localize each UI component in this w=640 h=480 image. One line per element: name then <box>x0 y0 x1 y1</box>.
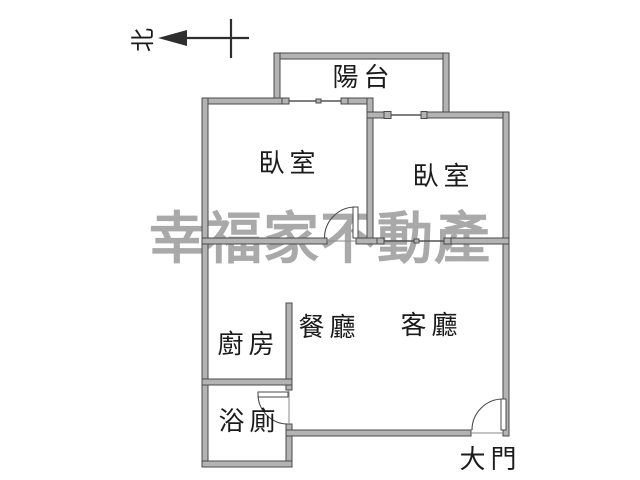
room-label-living: 客廳 <box>395 313 462 339</box>
bedroom-right-top-wall-b <box>426 112 509 118</box>
window-tick <box>316 99 321 103</box>
main-door-label: 大門 <box>454 447 521 473</box>
room-label-dining: 餐廳 <box>293 315 360 341</box>
kitchen-bathroom-wall <box>202 379 292 385</box>
middle-wall-c <box>450 238 509 244</box>
bathroom-door-leaf <box>258 392 288 397</box>
room-label-balcony: 陽台 <box>327 65 394 91</box>
north-compass: 北 <box>130 19 249 58</box>
balcony-left-wall <box>274 53 280 100</box>
room-label-bedroom-right: 臥室 <box>407 164 474 190</box>
balcony-top-wall <box>274 53 449 59</box>
window-cap <box>444 238 451 244</box>
main-door-leaf <box>501 399 506 430</box>
left-exterior-wall <box>202 98 208 467</box>
middle-wall-a <box>202 238 327 244</box>
window-tick <box>414 239 419 243</box>
window-cap <box>341 98 348 104</box>
window-cap <box>282 98 289 104</box>
window-cap <box>384 112 391 119</box>
room-label-bedroom-left: 臥室 <box>253 151 320 177</box>
north-label: 北 <box>130 28 157 52</box>
walls <box>202 53 509 467</box>
floor-plan-drawing: 北 <box>0 0 640 480</box>
right-exterior-wall <box>503 112 509 436</box>
window-cap <box>377 238 384 244</box>
window-cap <box>421 112 427 119</box>
north-arrow-icon <box>158 30 187 46</box>
kitchen-partition-wall <box>286 303 292 390</box>
bathroom-bottom-wall <box>202 461 292 467</box>
room-label-bathroom: 浴廁 <box>213 409 280 435</box>
main-door-arc <box>472 399 503 430</box>
room-label-kitchen: 廚房 <box>212 332 279 358</box>
bedroom-left-door-arc <box>325 207 356 238</box>
floor-plan: 幸福家不動產 北 <box>0 0 640 480</box>
bedroom-divider-wall <box>367 98 373 244</box>
balcony-right-wall <box>443 53 449 116</box>
bedroom-left-top-wall-a <box>202 98 288 104</box>
bedroom-left-door-leaf <box>353 207 358 238</box>
living-bottom-wall <box>286 430 471 436</box>
